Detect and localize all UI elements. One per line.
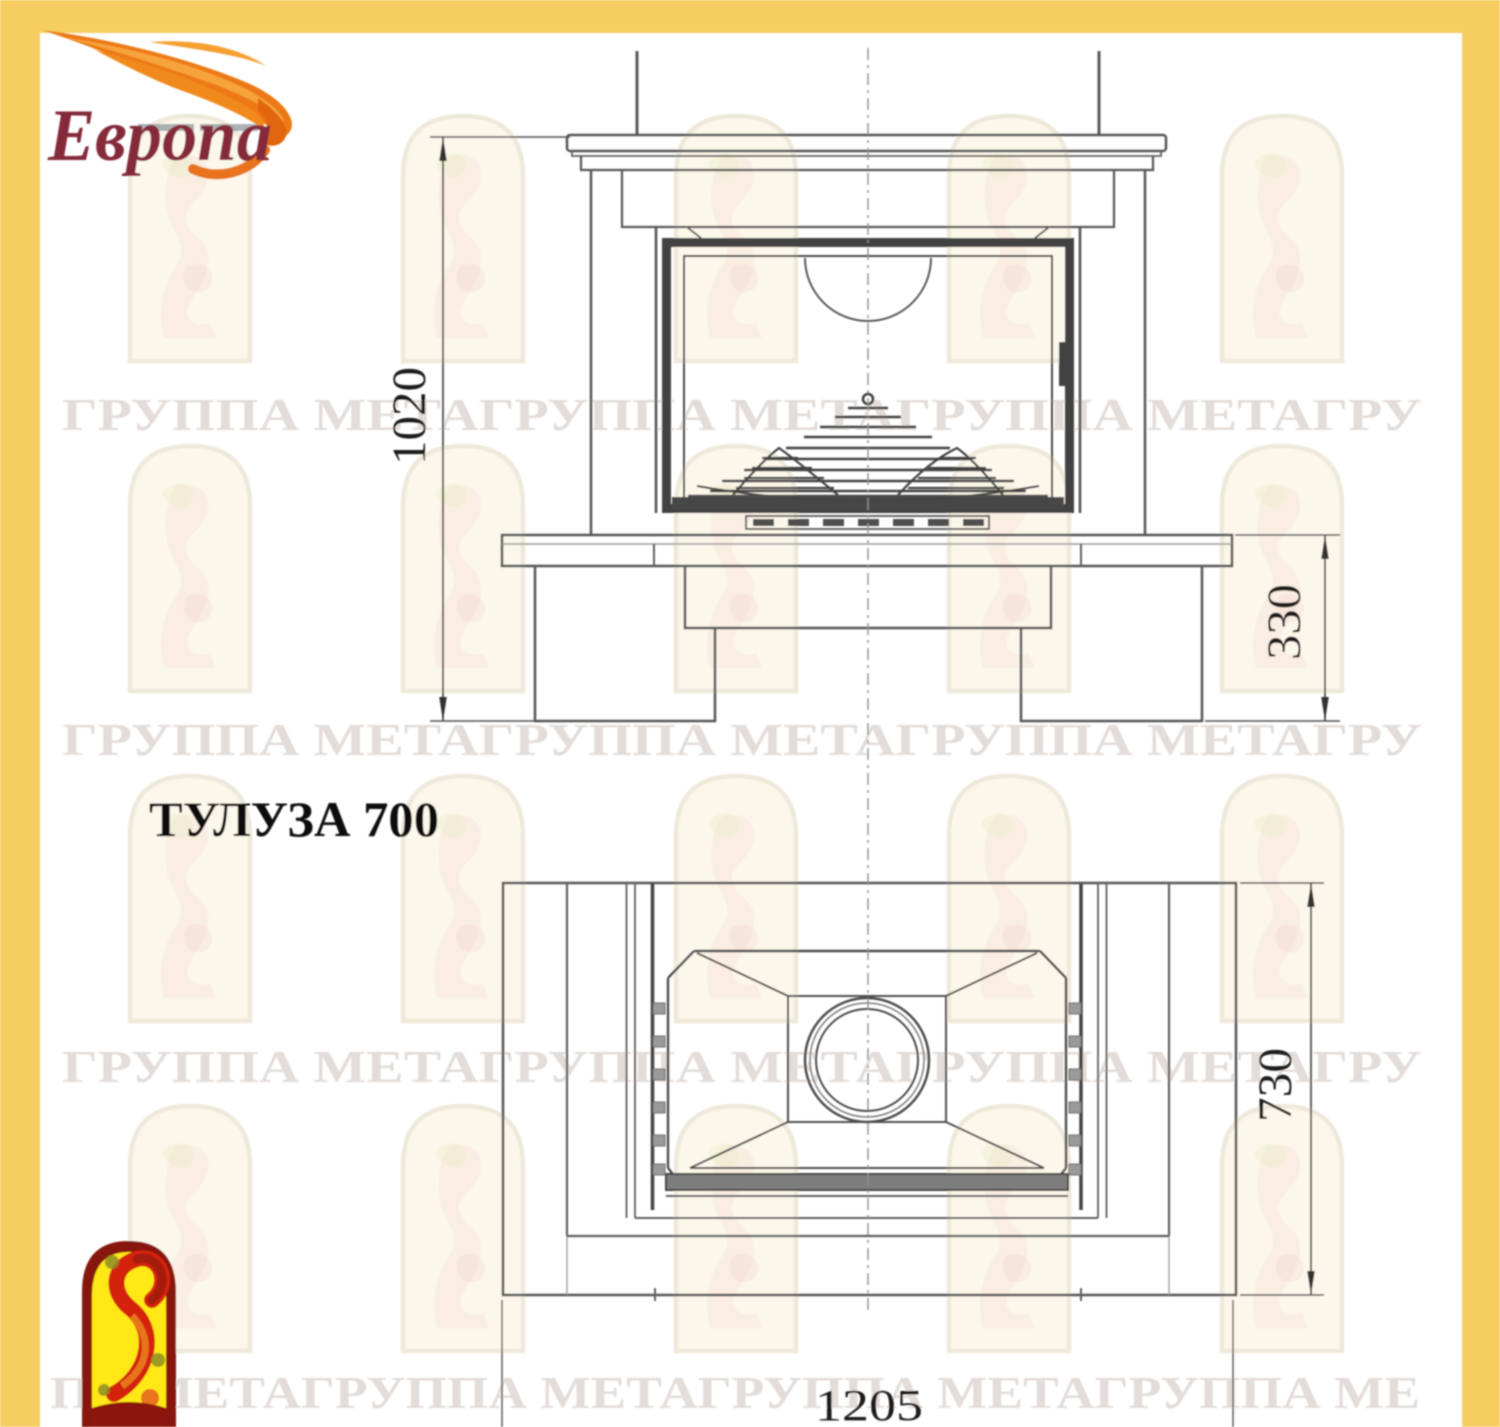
svg-text:ГРУППА МЕТАГРУППА МЕТАГРУППА М: ГРУППА МЕТАГРУППА МЕТАГРУППА МЕТАГРУ <box>62 389 1422 440</box>
svg-text:ПА МЕТАГРУППА МЕТАГРУППА МЕТАГ: ПА МЕТАГРУППА МЕТАГРУППА МЕТАГРУППА МЕ <box>50 1367 1420 1418</box>
svg-text:1205: 1205 <box>815 1381 923 1427</box>
svg-text:330: 330 <box>1258 584 1311 660</box>
svg-text:ТУЛУЗА 700: ТУЛУЗА 700 <box>149 791 439 847</box>
svg-text:ГРУППА МЕТАГРУППА МЕТАГРУППА М: ГРУППА МЕТАГРУППА МЕТАГРУППА МЕТАГРУ <box>62 1041 1422 1092</box>
svg-text:Европа: Европа <box>47 95 272 177</box>
svg-text:730: 730 <box>1249 1048 1302 1122</box>
svg-text:1020: 1020 <box>383 367 436 465</box>
